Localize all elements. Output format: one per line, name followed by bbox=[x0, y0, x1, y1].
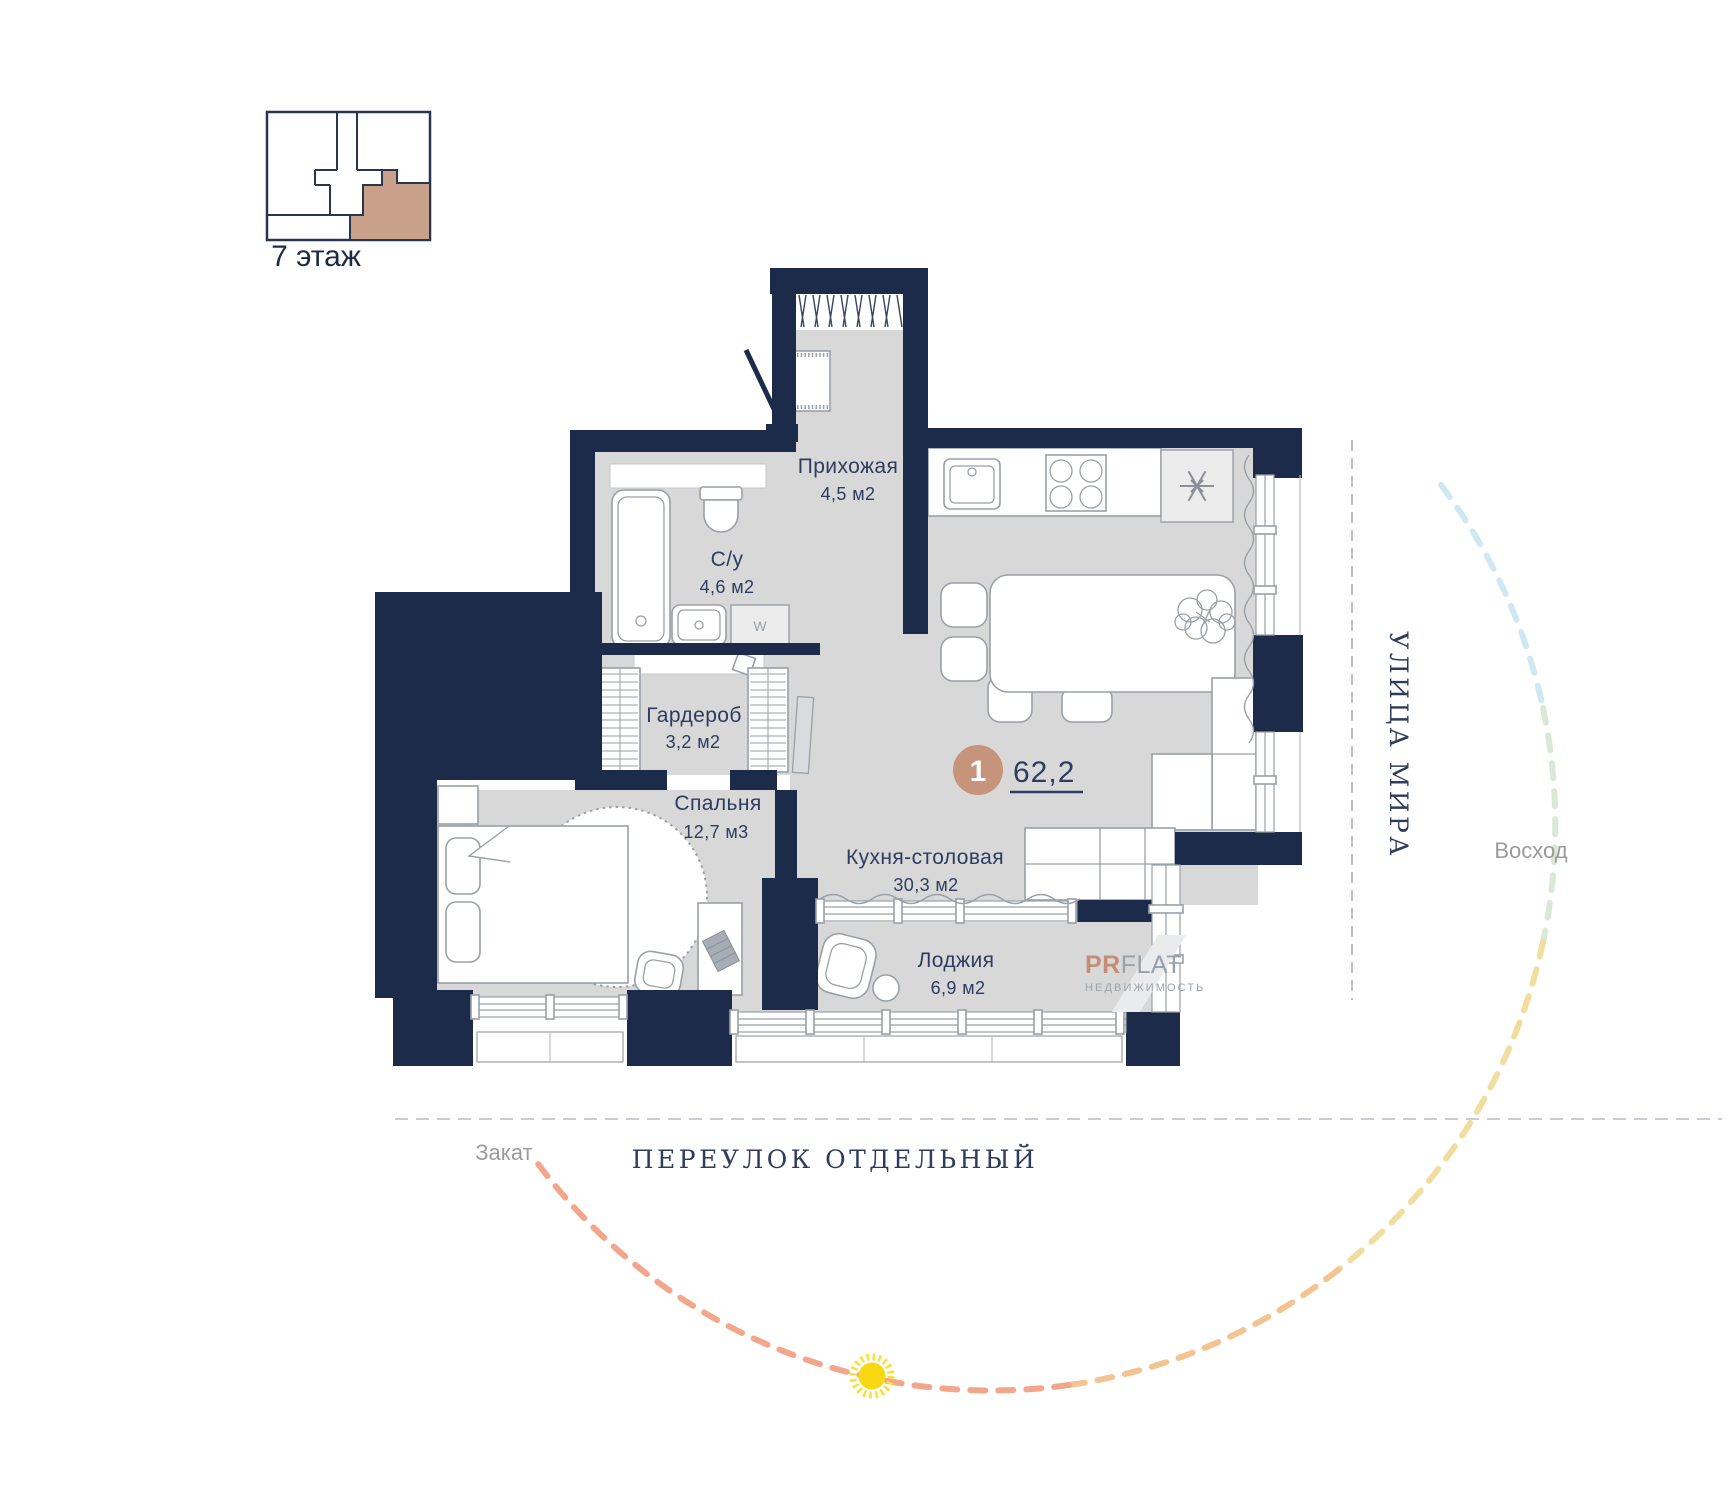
logo-suffix: FLAT bbox=[1121, 951, 1182, 979]
balcony-rail-loggia bbox=[736, 1036, 1122, 1062]
window-loggia-bottom bbox=[730, 1010, 1126, 1062]
sun-arc-forenoon bbox=[1543, 708, 1555, 942]
room-label-wardrobe: Гардероб bbox=[646, 704, 742, 727]
nightstand bbox=[438, 786, 478, 824]
dining-chair-4 bbox=[1062, 688, 1112, 722]
sun-arc-morning bbox=[1441, 485, 1543, 708]
wall-bath-bottom bbox=[565, 643, 820, 655]
floor-indicator: 7 этаж bbox=[267, 112, 430, 273]
wall-pier-mid-right bbox=[1253, 635, 1303, 732]
wall-corner-step bbox=[1175, 832, 1302, 865]
wall-bedroom-pier-right bbox=[627, 990, 732, 1066]
room-area-bathroom: 4,6 м2 bbox=[700, 577, 755, 597]
floor-label: 7 этаж bbox=[271, 240, 361, 273]
wardrobe-rail-left bbox=[600, 668, 640, 772]
window-right-lower bbox=[1254, 732, 1276, 832]
sunset-label: Закат bbox=[475, 1140, 532, 1165]
dining-chair-2 bbox=[941, 637, 987, 681]
floorplan-svg: 7 этаж Закат Восход улица Мира переулок … bbox=[0, 0, 1728, 1508]
wall-left-mass bbox=[375, 592, 602, 780]
stove-icon bbox=[1046, 455, 1106, 511]
badge-number: 1 bbox=[970, 755, 987, 788]
room-label-bathroom: С/у bbox=[711, 548, 744, 571]
pillow-2 bbox=[446, 902, 480, 962]
floorplan-page: 7 этаж Закат Восход улица Мира переулок … bbox=[0, 0, 1728, 1508]
window-right-upper bbox=[1254, 475, 1276, 635]
room-area-hallway: 4,5 м2 bbox=[821, 484, 876, 504]
window-bedroom-bottom bbox=[471, 995, 627, 1062]
dining-chair-1 bbox=[941, 583, 987, 627]
room-area-loggia: 6,9 м2 bbox=[931, 978, 986, 998]
pillow-1 bbox=[446, 838, 480, 894]
total-area: 62,2 bbox=[1013, 756, 1075, 789]
wall-pier-top-right bbox=[1253, 448, 1302, 478]
room-label-bedroom: Спальня bbox=[674, 792, 761, 815]
room-area-bedroom: 12,7 м3 bbox=[683, 822, 748, 842]
sun-arc-midday bbox=[1338, 942, 1543, 1270]
wall-bath-top bbox=[570, 430, 796, 452]
room-label-loggia: Лоджия bbox=[918, 949, 995, 972]
wall-bedroom-left bbox=[375, 780, 437, 998]
sun-arc-evening bbox=[533, 1157, 1069, 1390]
washer-label: W bbox=[753, 618, 767, 634]
room-area-kitchen: 30,3 м2 bbox=[893, 875, 958, 895]
wall-bedroom-pier-left bbox=[393, 990, 473, 1066]
room-label-kitchen: Кухня-столовая bbox=[846, 846, 1004, 869]
wall-entry-left bbox=[772, 292, 796, 424]
room-area-wardrobe: 3,2 м2 bbox=[666, 732, 721, 752]
street-name-bottom: переулок Отдельный bbox=[632, 1144, 1039, 1174]
doormat bbox=[794, 351, 830, 411]
loggia-side-table bbox=[873, 975, 899, 1001]
logo-subtitle: НЕДВИЖИМОСТЬ bbox=[1085, 982, 1205, 994]
bathtub bbox=[612, 490, 670, 648]
sun-icon bbox=[853, 1357, 891, 1395]
dining-table bbox=[990, 575, 1235, 692]
fridge-icon bbox=[1161, 450, 1233, 522]
street-name-right: улица Мира bbox=[1384, 631, 1413, 859]
wall-kitchen-bottom-right bbox=[1077, 900, 1152, 922]
wall-hallway-right bbox=[903, 292, 928, 634]
room-label-hallway: Прихожая bbox=[798, 455, 899, 478]
wardrobe-rail-right bbox=[748, 668, 788, 772]
sofa-seat bbox=[1152, 754, 1212, 830]
wall-bedroom-top-1 bbox=[575, 770, 667, 790]
logo-text: PRFLAT bbox=[1085, 951, 1182, 979]
bath-shelf bbox=[610, 464, 766, 488]
wall-loggia-left bbox=[762, 878, 818, 1010]
wall-bedroom-top-2 bbox=[730, 770, 777, 790]
entry-door bbox=[796, 294, 903, 328]
logo-prefix: PR bbox=[1085, 951, 1121, 979]
wall-door-stub bbox=[766, 424, 798, 442]
sunrise-label: Восход bbox=[1494, 838, 1567, 863]
wall-loggia-right-pier bbox=[1126, 1012, 1180, 1066]
wall-kitchen-top bbox=[928, 428, 1302, 448]
wall-entry-top bbox=[770, 268, 928, 294]
sun-arc-afternoon bbox=[1069, 1270, 1338, 1385]
